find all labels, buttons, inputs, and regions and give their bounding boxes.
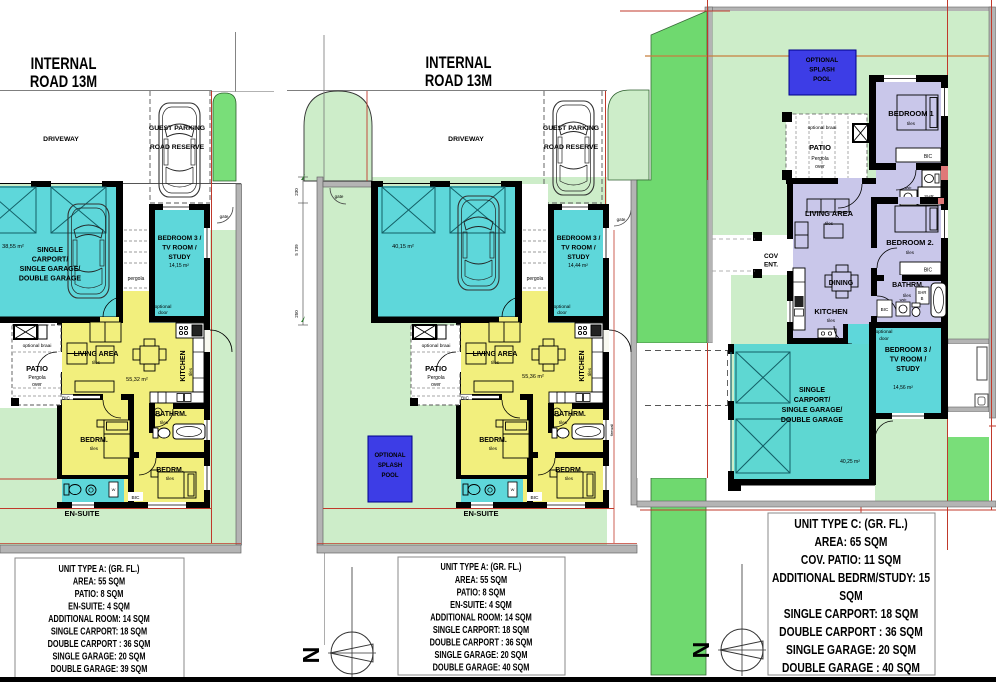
svg-text:BIC: BIC — [881, 307, 889, 312]
svg-text:14,56 m²: 14,56 m² — [893, 385, 913, 391]
svg-text:DOUBLE GARAGE: 40 SQM: DOUBLE GARAGE: 40 SQM — [433, 661, 530, 672]
svg-text:55,36 m²: 55,36 m² — [522, 374, 544, 380]
svg-text:DRIVEWAY: DRIVEWAY — [43, 136, 79, 143]
svg-text:GUEST PARKING: GUEST PARKING — [149, 125, 205, 132]
svg-text:COV. PATIO: 11 SQM: COV. PATIO: 11 SQM — [801, 553, 901, 567]
svg-text:14,44 m²: 14,44 m² — [568, 263, 588, 269]
svg-text:SPLASH: SPLASH — [809, 67, 835, 74]
svg-text:SINGLE GARAGE: 20 SQM: SINGLE GARAGE: 20 SQM — [434, 649, 527, 660]
svg-text:tiles: tiles — [907, 121, 916, 126]
svg-text:250: 250 — [294, 310, 299, 318]
svg-text:optional braai: optional braai — [808, 125, 837, 131]
svg-text:GUEST PARKING: GUEST PARKING — [543, 125, 599, 132]
svg-text:B: B — [921, 296, 924, 301]
svg-text:TV ROOM /: TV ROOM / — [890, 357, 927, 364]
svg-text:DOUBLE CARPORT : 36 SQM: DOUBLE CARPORT : 36 SQM — [430, 636, 533, 647]
svg-text:SINGLE CARPORT: 18 SQM: SINGLE CARPORT: 18 SQM — [51, 625, 147, 636]
svg-text:SINGLE CARPORT: 18 SQM: SINGLE CARPORT: 18 SQM — [433, 624, 529, 635]
svg-text:SINGLE GARAGE/: SINGLE GARAGE/ — [20, 266, 81, 273]
svg-text:wsb: wsb — [905, 186, 912, 190]
svg-text:tiles: tiles — [825, 221, 834, 226]
svg-text:BIC: BIC — [924, 154, 933, 160]
svg-text:AREA: 65 SQM: AREA: 65 SQM — [815, 535, 888, 549]
svg-text:over: over — [815, 164, 825, 170]
svg-text:EN-SUITE: 4 SQM: EN-SUITE: 4 SQM — [68, 600, 130, 611]
svg-text:ROAD RESERVE: ROAD RESERVE — [150, 144, 205, 151]
svg-text:OPTIONAL: OPTIONAL — [375, 453, 406, 459]
svg-text:AREA: 55 SQM: AREA: 55 SQM — [73, 575, 125, 586]
svg-text:ROAD RESERVE: ROAD RESERVE — [544, 144, 599, 151]
svg-text:tiles: tiles — [827, 318, 836, 323]
svg-text:DOUBLE GARAGE: 39 SQM: DOUBLE GARAGE: 39 SQM — [51, 663, 148, 674]
svg-text:DRIVEWAY: DRIVEWAY — [448, 136, 484, 143]
svg-text:wsb: wsb — [900, 298, 907, 302]
svg-text:DOUBLE GARAGE: DOUBLE GARAGE — [19, 276, 82, 283]
svg-text:INTERNAL: INTERNAL — [31, 56, 97, 74]
svg-text:5 739: 5 739 — [294, 244, 299, 256]
svg-text:Pergola: Pergola — [811, 156, 828, 162]
svg-text:ROAD 13M: ROAD 13M — [425, 73, 492, 91]
svg-text:BEDROOM 1: BEDROOM 1 — [888, 109, 933, 118]
svg-text:KITCHEN: KITCHEN — [814, 307, 847, 316]
svg-text:SINGLE: SINGLE — [37, 247, 63, 254]
svg-text:SINGLE GARAGE: 20 SQM: SINGLE GARAGE: 20 SQM — [786, 643, 916, 657]
svg-text:LIVING AREA: LIVING AREA — [805, 209, 854, 218]
svg-text:ROAD 13M: ROAD 13M — [30, 74, 97, 92]
svg-text:door: door — [879, 336, 889, 342]
svg-text:DOUBLE CARPORT : 36 SQM: DOUBLE CARPORT : 36 SQM — [779, 625, 923, 639]
svg-text:OPTIONAL: OPTIONAL — [806, 57, 839, 64]
svg-text:UNIT TYPE C: (GR. FL.): UNIT TYPE C: (GR. FL.) — [794, 517, 908, 531]
svg-text:POOL: POOL — [813, 76, 831, 83]
svg-text:optional: optional — [876, 329, 893, 335]
svg-text:14,15 m²: 14,15 m² — [169, 263, 189, 269]
svg-text:gate: gate — [335, 194, 344, 199]
svg-text:40,15 m²: 40,15 m² — [392, 244, 414, 250]
svg-text:tiles: tiles — [906, 250, 915, 255]
svg-text:55,32 m²: 55,32 m² — [126, 377, 148, 383]
svg-text:POOL: POOL — [381, 473, 398, 479]
svg-text:ENT.: ENT. — [764, 262, 778, 269]
svg-text:CARPORT/: CARPORT/ — [794, 397, 831, 404]
svg-text:SINGLE GARAGE: 20 SQM: SINGLE GARAGE: 20 SQM — [52, 650, 145, 661]
svg-text:STUDY: STUDY — [896, 366, 920, 373]
svg-text:PATIO: 8 SQM: PATIO: 8 SQM — [457, 586, 506, 597]
svg-text:N: N — [298, 647, 324, 664]
svg-text:SPLASH: SPLASH — [378, 463, 402, 469]
svg-text:SINGLE GARAGE/: SINGLE GARAGE/ — [782, 407, 843, 414]
svg-text:38,55 m²: 38,55 m² — [2, 244, 24, 250]
svg-text:BEDROOM 2.: BEDROOM 2. — [886, 238, 934, 247]
svg-text:BEDROOM 3 /: BEDROOM 3 / — [885, 347, 931, 354]
svg-text:SHR: SHR — [918, 290, 927, 295]
svg-text:BIC: BIC — [924, 268, 933, 274]
svg-text:N: N — [688, 642, 714, 659]
svg-text:INTERNAL: INTERNAL — [426, 55, 492, 73]
svg-text:DOUBLE GARAGE : 40 SQM: DOUBLE GARAGE : 40 SQM — [782, 661, 920, 675]
svg-text:gate: gate — [220, 214, 229, 219]
svg-text:PATIO: 8 SQM: PATIO: 8 SQM — [75, 588, 124, 599]
svg-text:ADDITIONAL BEDRM/STUDY: 15: ADDITIONAL BEDRM/STUDY: 15 — [772, 571, 931, 585]
svg-text:SINGLE CARPORT: 18 SQM: SINGLE CARPORT: 18 SQM — [784, 607, 919, 621]
svg-text:UNIT TYPE A: (GR. FL.): UNIT TYPE A: (GR. FL.) — [59, 563, 140, 574]
svg-text:gate: gate — [617, 217, 626, 222]
svg-text:EN-SUITE: 4 SQM: EN-SUITE: 4 SQM — [450, 599, 512, 610]
svg-text:40,25 m²: 40,25 m² — [840, 459, 860, 465]
svg-text:DOUBLE CARPORT : 36 SQM: DOUBLE CARPORT : 36 SQM — [48, 638, 151, 649]
svg-text:SINGLE: SINGLE — [799, 387, 825, 394]
svg-text:PATIO: PATIO — [809, 143, 831, 152]
svg-text:CARPORT/: CARPORT/ — [32, 257, 69, 264]
svg-text:ADDITIONAL ROOM: 14 SQM: ADDITIONAL ROOM: 14 SQM — [430, 611, 531, 622]
svg-text:230: 230 — [294, 188, 299, 196]
svg-text:DOUBLE GARAGE: DOUBLE GARAGE — [781, 417, 844, 424]
svg-text:DINING: DINING — [829, 280, 854, 287]
svg-text:COV: COV — [764, 253, 779, 260]
svg-text:UNIT TYPE A: (GR. FL.): UNIT TYPE A: (GR. FL.) — [441, 561, 522, 572]
svg-text:SQM: SQM — [839, 589, 862, 603]
svg-text:AREA: 55 SQM: AREA: 55 SQM — [455, 574, 507, 585]
svg-text:ADDITIONAL ROOM: 14 SQM: ADDITIONAL ROOM: 14 SQM — [48, 613, 149, 624]
svg-text:firewall: firewall — [609, 424, 614, 437]
